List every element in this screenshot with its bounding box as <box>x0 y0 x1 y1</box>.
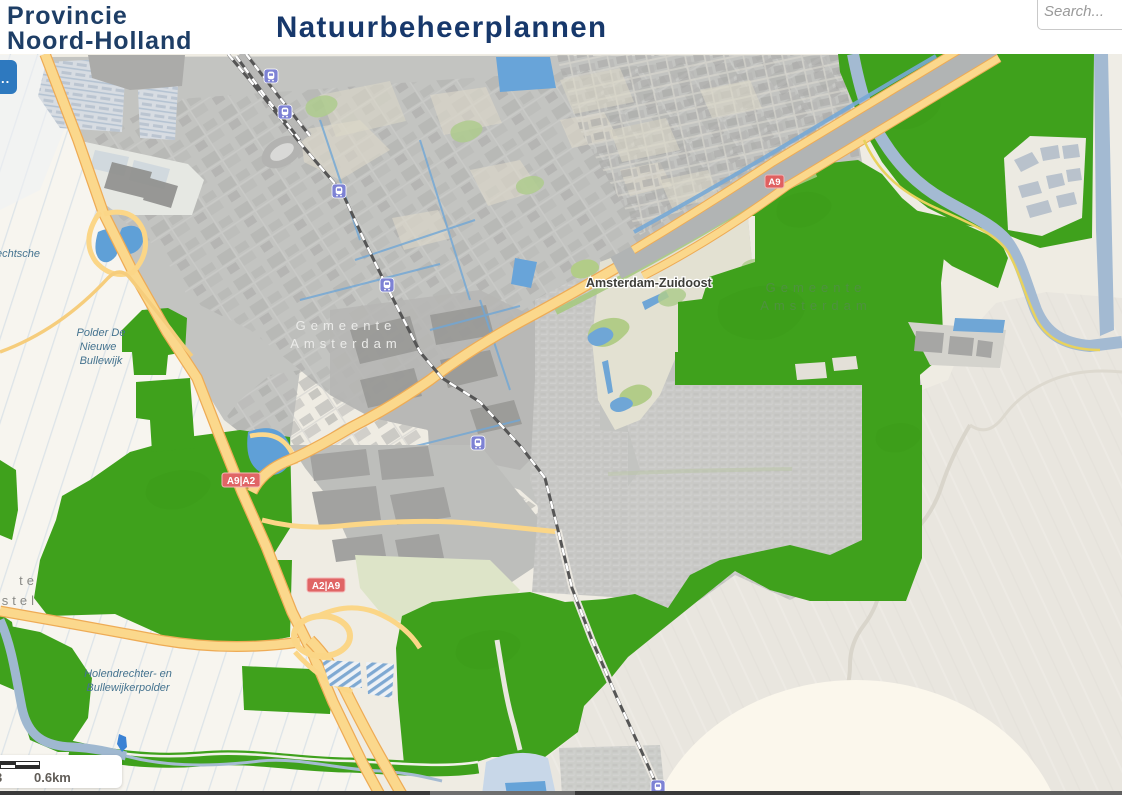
svg-text:Amsterdam-Zuidoost: Amsterdam-Zuidoost <box>586 276 713 290</box>
svg-text:echtsche: echtsche <box>0 248 40 260</box>
svg-text:A9: A9 <box>768 177 780 188</box>
svg-text:Holendrechter- en: Holendrechter- en <box>84 668 172 680</box>
svg-text:Bullewijkerpolder: Bullewijkerpolder <box>86 682 170 694</box>
svg-text:te: te <box>19 573 38 588</box>
svg-text:A9|A2: A9|A2 <box>227 476 256 487</box>
svg-text:Gemeente: Gemeente <box>296 318 397 333</box>
svg-text:Polder De: Polder De <box>77 327 126 339</box>
svg-text:Amsterdam: Amsterdam <box>290 336 401 351</box>
svg-text:Gemeente: Gemeente <box>766 280 867 295</box>
svg-text:Bullewijk: Bullewijk <box>80 355 123 367</box>
svg-text:stel: stel <box>2 593 38 608</box>
svg-text:Nieuwe: Nieuwe <box>80 341 117 353</box>
svg-text:A2|A9: A2|A9 <box>312 581 341 592</box>
svg-text:Amsterdam: Amsterdam <box>760 298 871 313</box>
